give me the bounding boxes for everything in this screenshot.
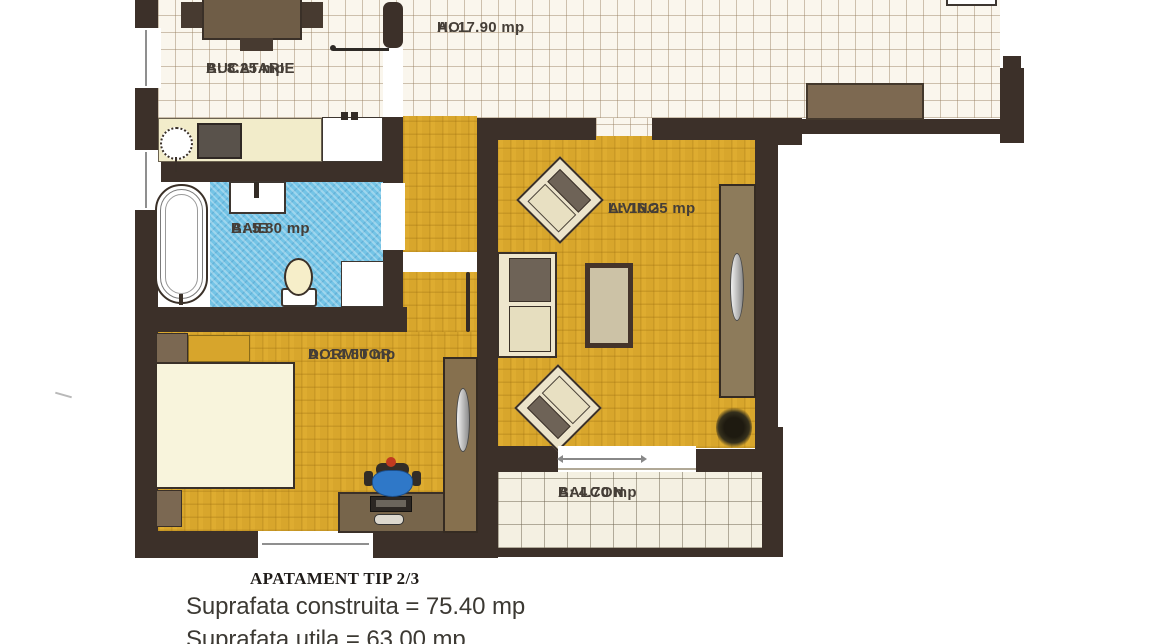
corridor-door-leaf [466,272,470,332]
room-area: A: 16.25 mp [608,198,696,220]
wall-balcony-right [762,427,783,557]
wall-living-bottom-left [477,446,558,472]
room-area: A: 14.80 mp [308,343,396,367]
plant [716,406,752,449]
kitchen-chair-bottom [240,38,273,51]
living-cabinet-handle [730,253,744,321]
kitchen-table [202,0,302,40]
kitchen-chair-right [302,2,323,28]
kitchen-unit-tap-2 [351,112,358,120]
balcony-door-arrowhead-right [641,455,647,463]
desk-keyboard [374,514,404,525]
desk-chair-knob [386,457,396,467]
kitchen-chair-left [181,2,202,28]
hall-bench [806,83,924,120]
bathtub-drain [179,294,183,305]
kitchen-sink-faucet [175,157,177,172]
desk-chair-arm-right [412,471,421,486]
bathtub-basin [165,194,198,294]
shower-unit [341,261,384,307]
kitchen-door-leaf [333,48,389,51]
kitchen-door-hinge [330,45,336,51]
room-area: A: 5.80 mp [231,218,310,240]
dormitor-wardrobe-handle [456,388,470,452]
corridor-door-gap [403,252,477,272]
wall-corridor-right [477,118,498,558]
wall-dormitor-bottom-left [135,531,258,558]
dresser-gold [188,335,250,362]
nightstand-top [156,333,188,363]
sofa-cushion-light [509,306,551,352]
wall-hall-bottom [652,119,1002,134]
wall-hall-right-main [1000,68,1024,143]
apartment-title: APATAMENT TIP 2/3 [250,569,420,589]
room-area: A: 8.25 mp [206,58,285,80]
wall-kitchen-stub [383,2,403,48]
wall-corridor-left-upper [383,117,403,183]
kitchen-unit-tap-1 [341,112,348,120]
balcony-door-rail [558,468,696,470]
built-area-text: Suprafata construita = 75.40 mp [186,593,525,621]
bath-sink-faucet [254,182,259,198]
desk-monitor-screen [376,500,406,507]
window-left-2-glass [145,152,147,208]
window-left-1 [133,28,161,88]
kitchen-doorway-gap [383,47,403,118]
wall-kitchen-bath [158,162,403,182]
desk-chair-seat [372,470,413,497]
wall-hall-right-notch [1003,56,1021,68]
room-area: A: 4.70 mp [558,481,637,505]
hall-top-fixture [946,0,997,6]
wall-living-right [755,118,778,455]
usable-area-text: Suprafata utila = 63.00 mp [186,626,466,644]
bed [155,362,295,489]
wall-dormitor-bottom-right [373,531,480,558]
window-left-1-glass [145,30,147,86]
bathroom-doorway [381,183,405,250]
window-dormitor-glass [262,543,369,545]
balcony-door-arrowhead-left [557,455,563,463]
nightstand-bottom [156,490,182,527]
toilet-bowl [284,258,313,296]
kitchen-stove [197,123,242,159]
sofa-cushion-dark [509,258,551,302]
coffee-table [585,263,633,348]
kitchen-sink [160,127,193,160]
floor-corridor-upper [403,116,477,252]
balcony-door-arrow [560,458,644,460]
wall-balcony-bottom [480,548,783,557]
wall-step-top-right [778,118,802,145]
wall-living-top-left [477,118,596,140]
floor-plan: BUCATARIE A: 8.25 mp HOL A: 17.90 mp BAI… [0,0,1156,644]
room-area: A: 17.90 mp [437,15,525,41]
wall-bath-bottom [135,307,407,332]
pen-tick-mark [55,392,72,399]
kitchen-fridge-unit [322,117,383,162]
